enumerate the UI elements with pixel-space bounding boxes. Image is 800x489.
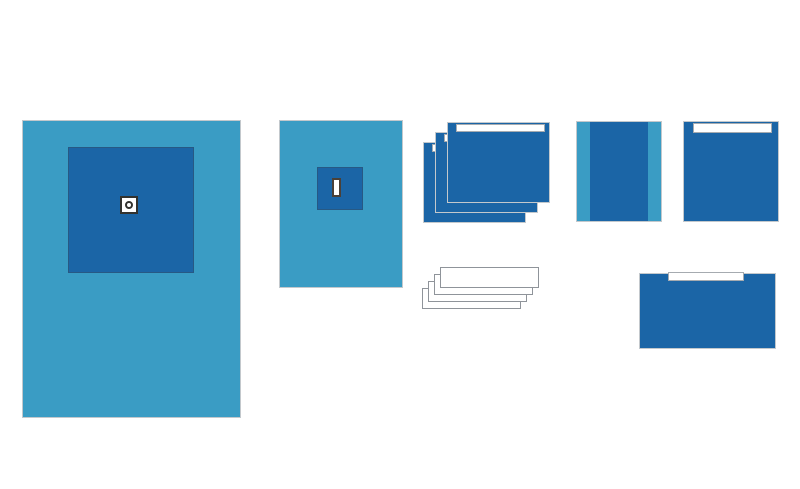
- adhesive-tape-strip: [693, 123, 772, 133]
- small-fenestrated-drape: [279, 120, 403, 288]
- reinforcement-patch: [68, 147, 194, 273]
- adhesive-side-drape-stack: [423, 122, 551, 224]
- center-panel: [590, 122, 648, 221]
- drape-pack-illustration: [0, 0, 800, 489]
- towel: [440, 267, 539, 288]
- round-fenestration-icon: [120, 196, 138, 214]
- adhesive-tape-strip: [668, 272, 744, 281]
- wide-adhesive-drape: [639, 273, 776, 349]
- side-drape: [447, 122, 550, 203]
- fenestration-hole: [125, 201, 133, 209]
- towel-stack: [422, 267, 540, 310]
- slot-fenestration-icon: [332, 178, 341, 197]
- adhesive-drape: [683, 121, 779, 222]
- adhesive-tape-strip: [456, 124, 545, 132]
- reinforcement-patch: [317, 167, 363, 210]
- side-band-drape: [576, 121, 662, 222]
- large-fenestrated-drape: [22, 120, 241, 418]
